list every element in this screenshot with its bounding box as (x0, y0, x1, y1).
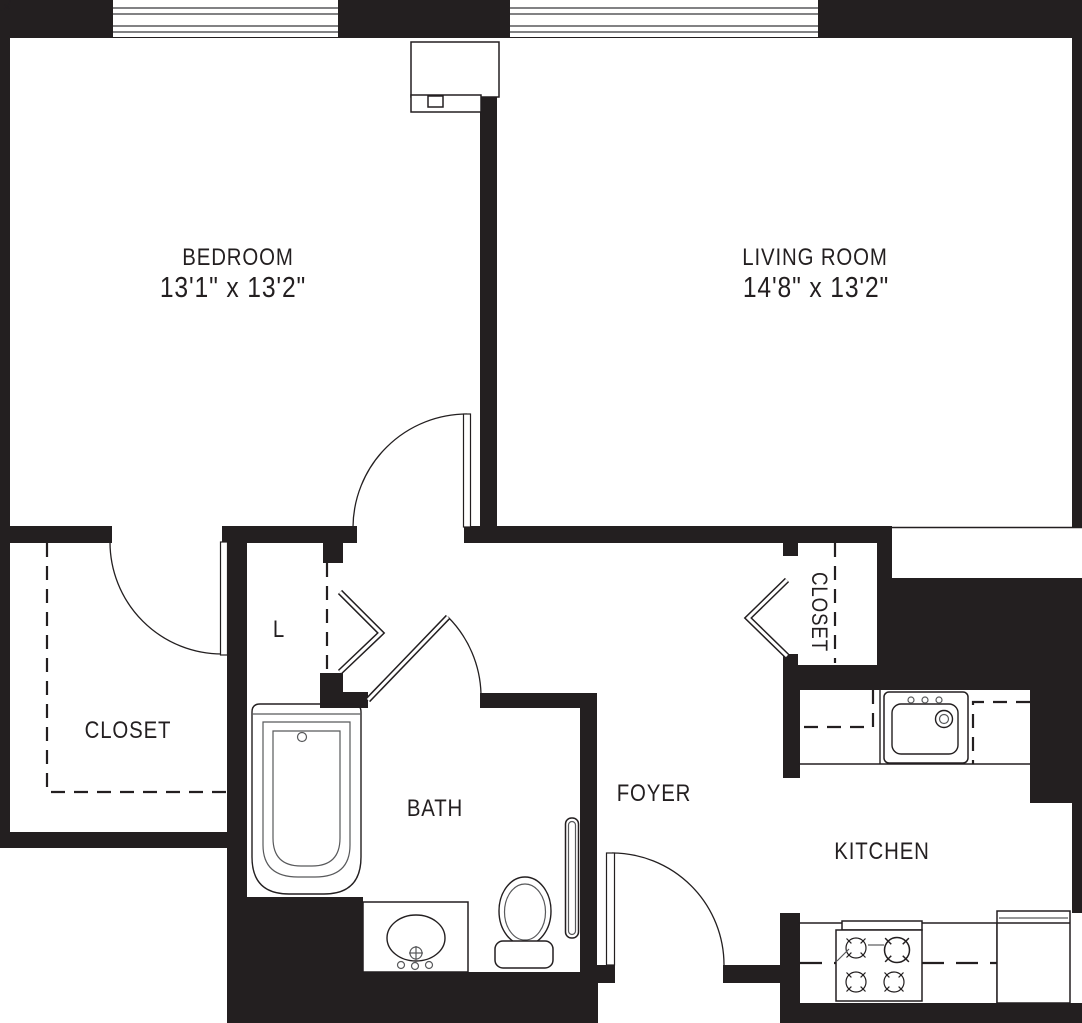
room-label-hall-closet: CLOSET (802, 485, 832, 740)
room-label-living-room: LIVING ROOM (688, 244, 943, 272)
room-label-foyer: FOYER (527, 780, 782, 808)
entry-door (607, 853, 725, 965)
room-label-linen-closet: L (152, 616, 407, 644)
room-label-closet: CLOSET (1, 717, 256, 745)
bedroom-door (353, 414, 471, 527)
toilet (495, 877, 553, 968)
room-label-bedroom: BEDROOM (111, 244, 366, 272)
bath-wall-fixture (566, 818, 579, 938)
bedroom-window (113, 0, 338, 37)
living-room-window (510, 0, 818, 37)
floor-plan: BEDROOM 13'1" x 13'2" LIVING ROOM 14'8" … (0, 0, 1082, 1023)
dishwasher-dashed-outline (973, 702, 1030, 764)
refrigerator (997, 911, 1070, 1003)
kitchen-sink (884, 692, 968, 763)
hall-closet-bifold-door (748, 580, 787, 656)
bedroom-closet-dashed-outline (47, 543, 233, 792)
room-dimensions-bedroom: 13'1" x 13'2" (106, 272, 361, 305)
walls (0, 0, 1082, 1023)
room-label-kitchen: KITCHEN (755, 838, 1010, 866)
bath-vanity-sink (363, 902, 468, 972)
room-dimensions-living-room: 14'8" x 13'2" (689, 272, 944, 305)
room-label-bath: BATH (308, 795, 563, 823)
floor-plan-drawing (0, 0, 1082, 1023)
